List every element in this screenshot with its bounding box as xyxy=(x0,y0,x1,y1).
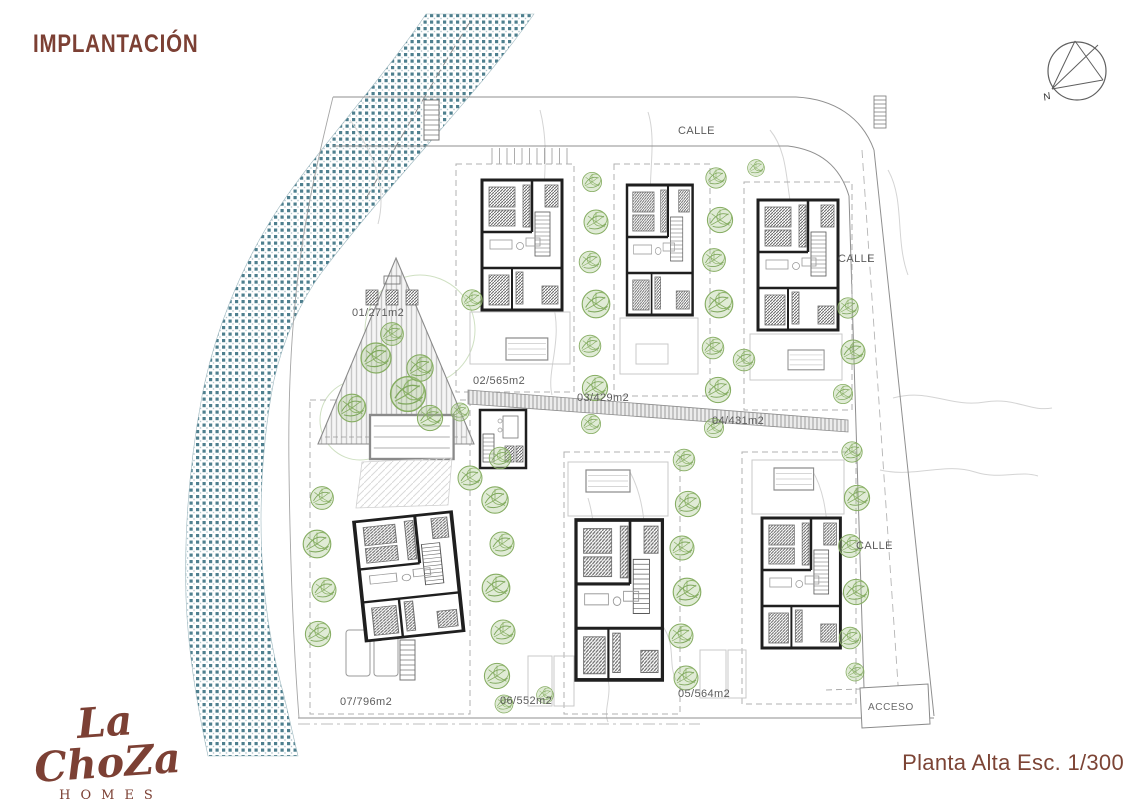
access-label: ACCESO xyxy=(868,702,914,713)
street-label-right-lower: CALLE xyxy=(856,540,893,552)
house-plot-05 xyxy=(762,518,840,648)
street-label-top: CALLE xyxy=(678,125,715,137)
stairs-icon xyxy=(424,100,439,140)
plot-label-03: 03/429m2 xyxy=(577,392,629,404)
house-plot-02 xyxy=(482,180,562,310)
plot-label-04: 04/431m2 xyxy=(712,415,764,427)
site-plan-sheet: IMPLANTACIÓN xyxy=(0,0,1140,806)
logo-name: La ChoZa xyxy=(23,697,188,790)
stairs-icon xyxy=(400,640,415,680)
house-plot-04 xyxy=(758,200,838,330)
stairs-icon xyxy=(874,96,886,128)
plot-label-02: 02/565m2 xyxy=(473,375,525,387)
house-plot-06 xyxy=(576,520,662,680)
site-plan-drawing: N CALLE CALLE CALLE ACCESO 01/271m2 02/5… xyxy=(0,0,1140,806)
drawing-scale-label: Planta Alta Esc. 1/300 xyxy=(902,750,1124,776)
plot-label-06: 06/552m2 xyxy=(500,695,552,707)
street-label-right-upper: CALLE xyxy=(838,253,875,265)
plot-label-05: 05/564m2 xyxy=(678,688,730,700)
plot-label-01: 01/271m2 xyxy=(352,307,404,319)
company-logo: La ChoZa HOMES xyxy=(26,702,186,803)
plot-label-07: 07/796m2 xyxy=(340,696,392,708)
north-arrow-icon: N xyxy=(1042,41,1106,104)
house-plot-03 xyxy=(627,185,693,315)
north-label: N xyxy=(1042,91,1053,104)
house-plot-07 xyxy=(354,512,464,641)
